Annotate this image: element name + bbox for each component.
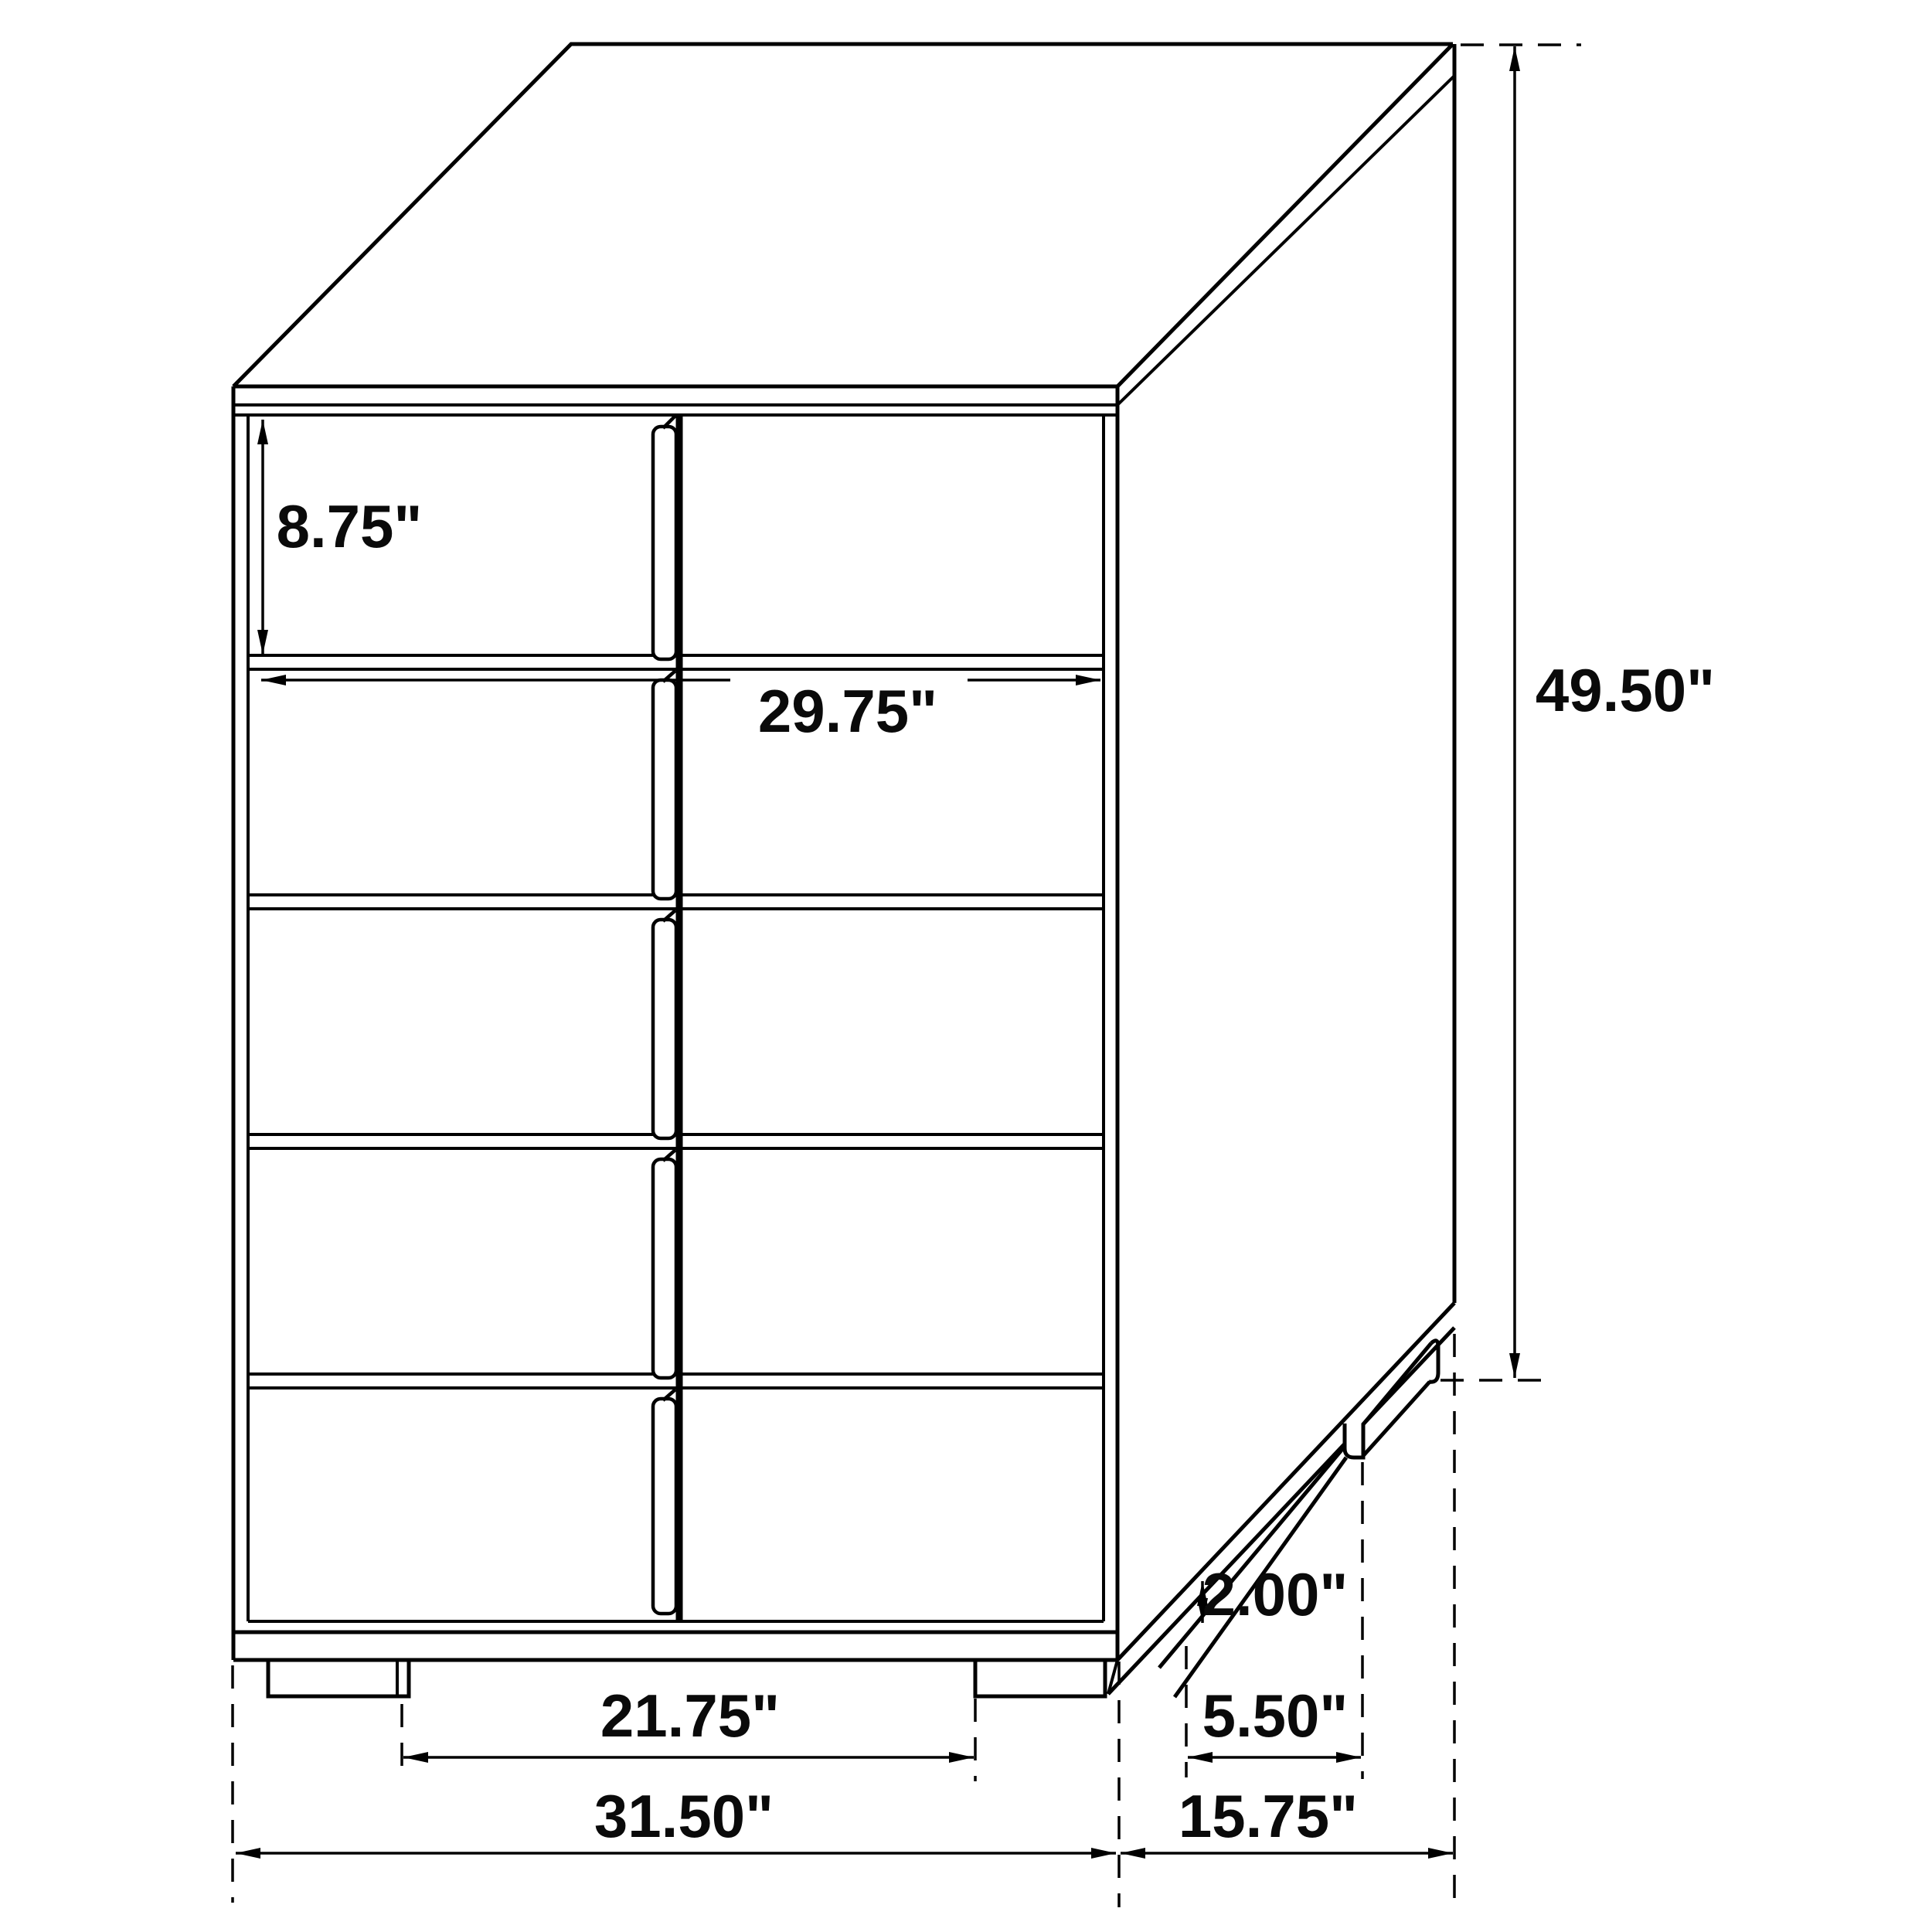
drawer-3-handle bbox=[653, 920, 676, 1138]
label-drawer-width: 29.75" bbox=[758, 677, 937, 745]
drawer-4-handle bbox=[653, 1159, 676, 1378]
cabinet bbox=[233, 44, 1454, 1697]
label-foot-depth-spacing: 5.50" bbox=[1202, 1682, 1349, 1750]
drawer-2-handle bbox=[653, 680, 676, 899]
label-foot-width-spacing: 21.75" bbox=[600, 1682, 780, 1750]
label-foot-height: 2.00" bbox=[1202, 1560, 1349, 1628]
cabinet-side-panel bbox=[1108, 44, 1454, 1697]
drawer-1-handle bbox=[653, 427, 676, 659]
chest-dimension-diagram: 8.75" 29.75" 49.50" 2.00" 5.50" 21.75" 3… bbox=[0, 0, 1932, 1932]
foot-back bbox=[1345, 1423, 1363, 1458]
side-panel-bottom-edge-inner bbox=[1108, 1328, 1454, 1694]
label-overall-height: 49.50" bbox=[1536, 656, 1715, 724]
label-drawer-height: 8.75" bbox=[277, 492, 423, 560]
extension-lines bbox=[233, 45, 1581, 1907]
foot-front-left bbox=[268, 1660, 409, 1696]
drawer-center-divider bbox=[653, 415, 679, 1621]
top-face-back-edge bbox=[233, 44, 1453, 386]
top-face-right-edge bbox=[1117, 44, 1453, 386]
cabinet-top-face bbox=[233, 44, 1454, 415]
dimension-labels: 8.75" 29.75" 49.50" 2.00" 5.50" 21.75" 3… bbox=[277, 492, 1715, 1850]
label-overall-depth: 15.75" bbox=[1179, 1782, 1358, 1850]
foot-front-right bbox=[975, 1660, 1105, 1696]
top-face-right-edge-inner bbox=[1117, 76, 1454, 405]
drawer-5-handle bbox=[653, 1399, 676, 1614]
drawer-handle-strips bbox=[653, 416, 676, 1614]
label-overall-width: 31.50" bbox=[594, 1782, 774, 1850]
